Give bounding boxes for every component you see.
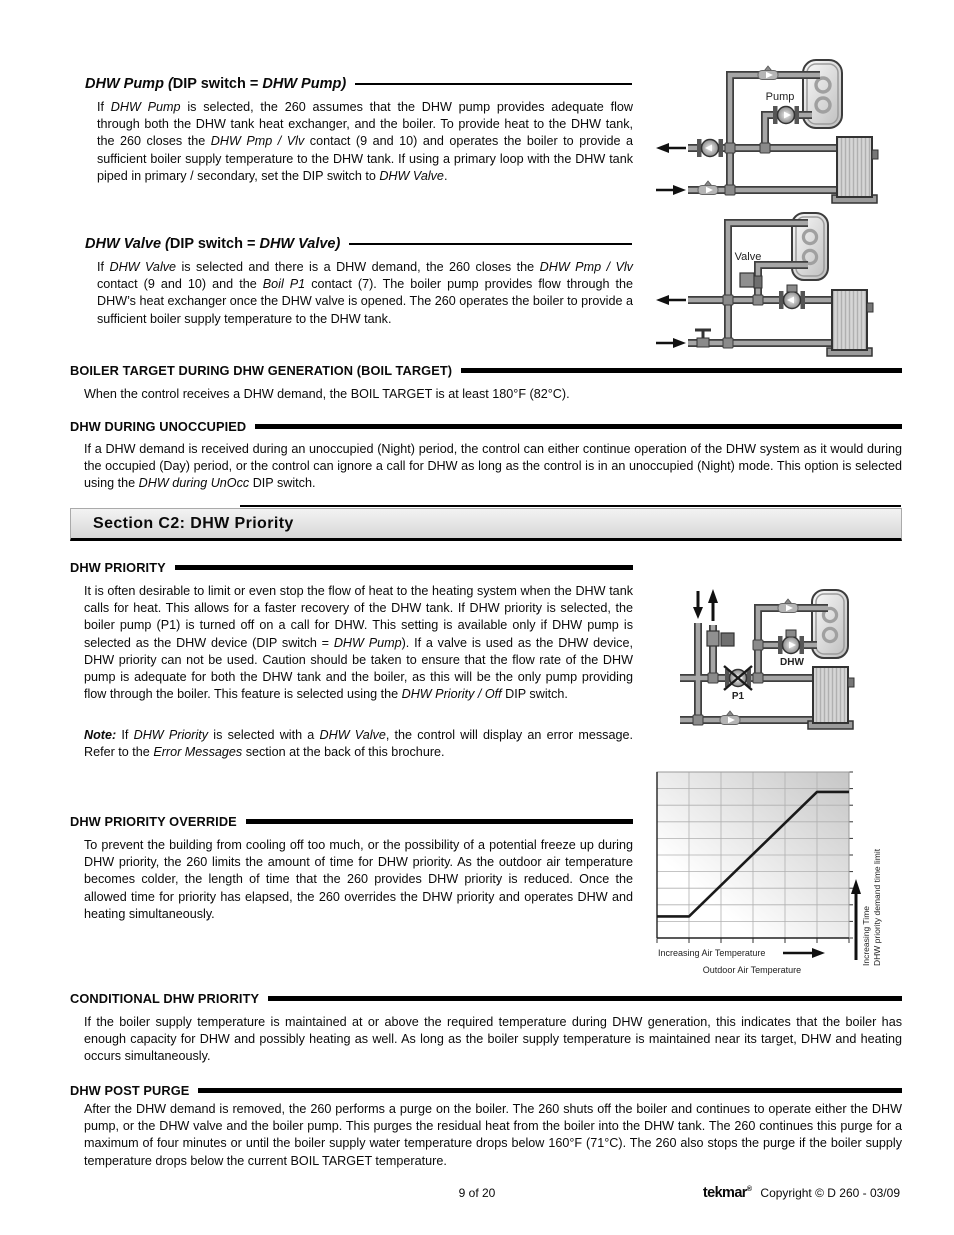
paragraph-dhw-valve: If DHW Valve is selected and there is a …: [97, 259, 633, 328]
footer-brand-copyright: tekmar® Copyright © D 260 - 03/09: [703, 1185, 900, 1201]
boiler: [832, 137, 878, 203]
valve-label: Valve: [735, 251, 762, 263]
heading-text: DHW PRIORITY: [70, 560, 166, 575]
flow-in-arrow-icon: [656, 185, 686, 195]
heading-text: BOILER TARGET DURING DHW GENERATION (BOI…: [70, 363, 452, 378]
boiler: [808, 667, 854, 729]
registered-mark: ®: [747, 1186, 752, 1193]
priority-override-chart: Increasing Time DHW priority demand time…: [655, 770, 895, 978]
dhw-tank: [812, 590, 848, 658]
paragraph-boil-target: When the control receives a DHW demand, …: [84, 386, 902, 403]
up-arrow-icon: [851, 879, 861, 894]
p1-pump-crossed-icon: [724, 666, 752, 690]
heading-text: DHW POST PURGE: [70, 1083, 189, 1098]
banner-top-line: [240, 505, 901, 507]
heading-conditional-priority: CONDITIONAL DHW PRIORITY: [70, 991, 902, 1006]
paragraph-dhw-pump: If DHW Pump is selected, the 260 assumes…: [97, 99, 633, 185]
heading-boil-target: BOILER TARGET DURING DHW GENERATION (BOI…: [70, 363, 902, 378]
heading-rule: [246, 819, 633, 824]
heading-rule: [255, 424, 902, 429]
heading-text: DHW DURING UNOCCUPIED: [70, 419, 246, 434]
heading-rule: [175, 565, 633, 570]
p1-label: P1: [732, 691, 745, 702]
pump-piping-diagram: Pump: [640, 55, 950, 215]
heading-rule: [349, 243, 632, 245]
system-pump-icon: [697, 139, 723, 157]
xlabel: Outdoor Air Temperature: [703, 965, 801, 975]
heading-text: DHW Pump (DIP switch = DHW Pump): [85, 76, 346, 92]
heating-return-arrow-icon: [708, 589, 718, 621]
paragraph-conditional-priority: If the boiler supply temperature is main…: [84, 1014, 902, 1066]
boiler: [827, 290, 873, 356]
pump-label: Pump: [766, 91, 795, 103]
dhw-pump-icon: [773, 106, 799, 124]
chart-y-axis-label: Increasing Time DHW priority demand time…: [851, 848, 882, 966]
heading-rule: [268, 996, 902, 1001]
heading-dhw-unoccupied: DHW DURING UNOCCUPIED: [70, 419, 902, 434]
section-banner: Section C2: DHW Priority: [70, 508, 902, 541]
heading-text: CONDITIONAL DHW PRIORITY: [70, 991, 259, 1006]
check-valve-icon: [758, 66, 778, 80]
valve-piping-diagram: Valve: [640, 210, 950, 370]
heading-priority-override: DHW PRIORITY OVERRIDE: [70, 814, 633, 829]
heading-dhw-pump: DHW Pump (DIP switch = DHW Pump): [85, 76, 632, 92]
copyright-text: Copyright © D 260 - 03/09: [760, 1186, 900, 1200]
dhw-label: DHW: [780, 657, 804, 668]
flow-in-arrow-icon: [656, 338, 686, 348]
ylabel-line2: DHW priority demand time limit: [872, 848, 882, 966]
drain-valve-icon: [695, 330, 711, 347]
paragraph-dhw-priority-note: Note: If DHW Priority is selected with a…: [84, 727, 633, 761]
dhw-pump-icon: [778, 630, 804, 654]
x-arrow-label: Increasing Air Temperature: [658, 948, 765, 958]
boiler-pump-icon: [779, 285, 805, 309]
right-arrow-icon: [812, 948, 825, 958]
return-valve-icon: [698, 181, 718, 195]
return-valve-icon: [720, 711, 740, 725]
tekmar-logo: tekmar®: [703, 1185, 752, 1201]
check-valve-icon: [778, 599, 798, 613]
heading-post-purge: DHW POST PURGE: [70, 1083, 902, 1098]
heading-dhw-valve: DHW Valve (DIP switch = DHW Valve): [85, 236, 632, 252]
paragraph-dhw-unoccupied: If a DHW demand is received during an un…: [84, 441, 902, 493]
heading-text: DHW PRIORITY OVERRIDE: [70, 814, 237, 829]
flow-out-arrow-icon: [656, 143, 686, 153]
priority-piping-diagram: P1 DHW: [655, 575, 950, 745]
paragraph-post-purge: After the DHW demand is removed, the 260…: [84, 1101, 902, 1170]
heading-text: DHW Valve (DIP switch = DHW Valve): [85, 236, 340, 252]
heading-rule: [198, 1088, 902, 1093]
heading-rule: [355, 83, 632, 85]
paragraph-priority-override: To prevent the building from cooling off…: [84, 837, 633, 923]
flow-out-arrow-icon: [656, 295, 686, 305]
section-banner-title: Section C2: DHW Priority: [93, 515, 294, 532]
heading-dhw-priority: DHW PRIORITY: [70, 560, 633, 575]
system-valve-actuator-icon: [707, 631, 734, 646]
heating-supply-arrow-icon: [693, 591, 703, 619]
paragraph-dhw-priority: It is often desirable to limit or even s…: [84, 583, 633, 703]
document-page: DHW Pump (DIP switch = DHW Pump) If DHW …: [0, 0, 954, 1235]
heading-rule: [461, 368, 902, 373]
chart-x-axis-label: Increasing Air Temperature Outdoor Air T…: [658, 948, 825, 975]
ylabel-line1: Increasing Time: [861, 906, 871, 966]
pipes: [680, 608, 828, 725]
